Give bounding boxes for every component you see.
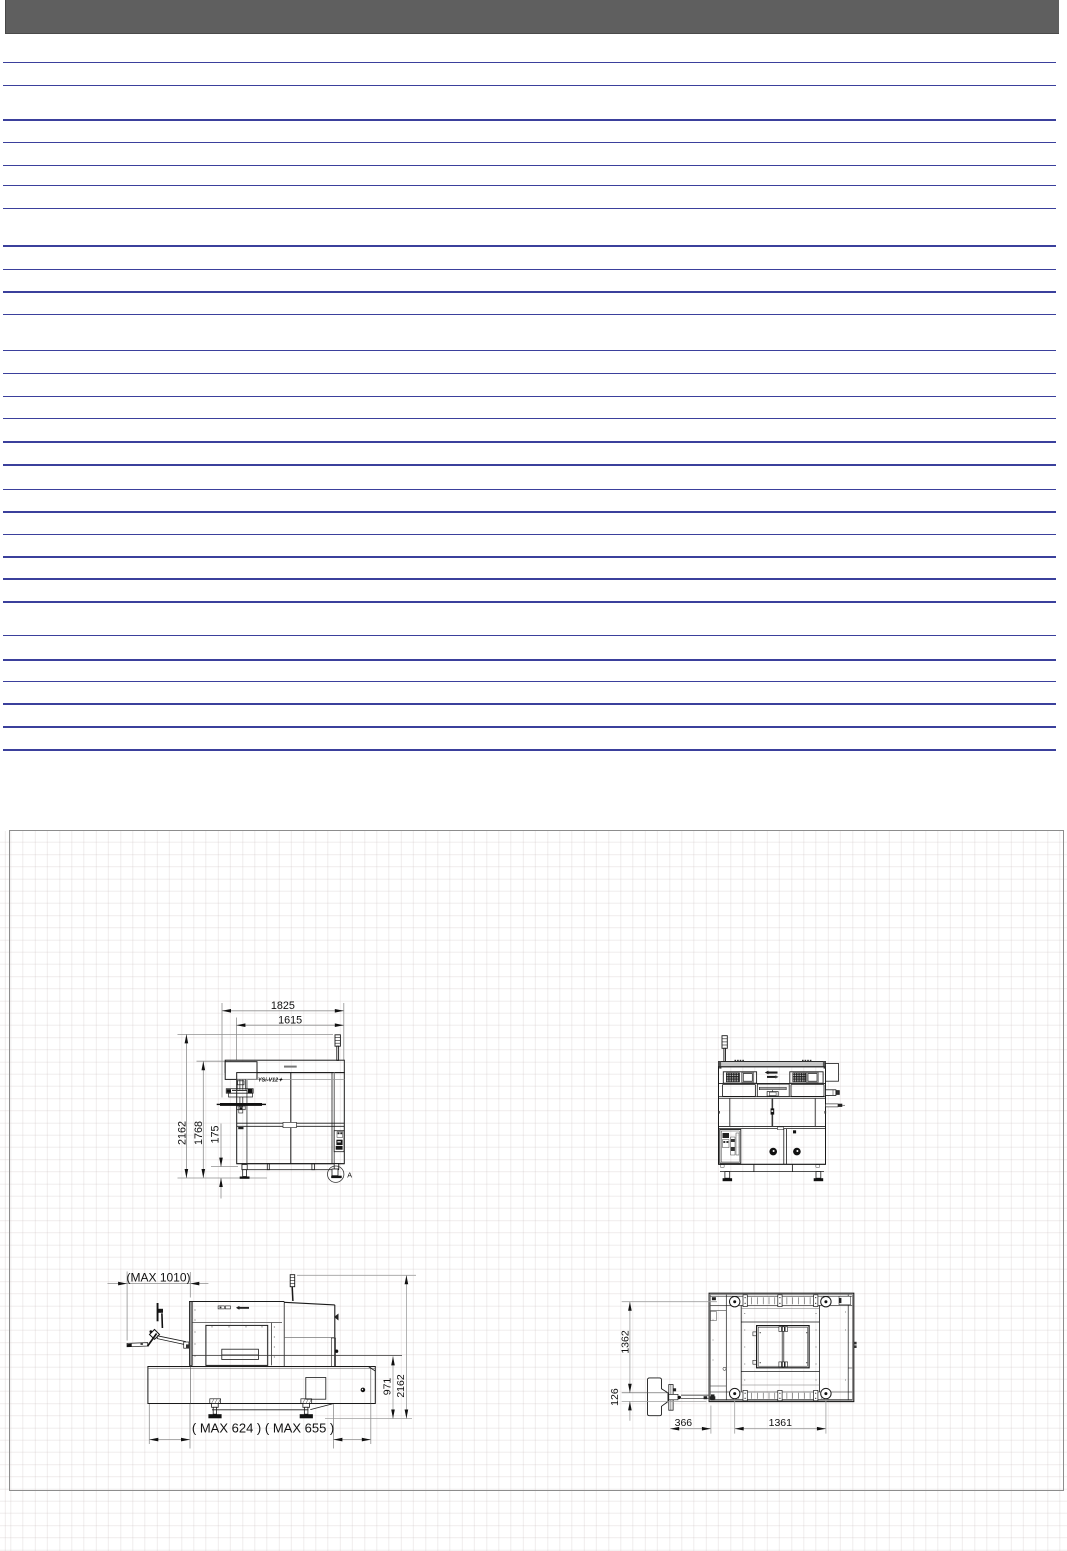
svg-text:1361: 1361: [769, 1417, 793, 1429]
svg-text:1615: 1615: [278, 1015, 302, 1027]
svg-text:1362: 1362: [619, 1330, 631, 1354]
svg-text:2162: 2162: [395, 1374, 407, 1398]
svg-text:(MAX 1010): (MAX 1010): [126, 1270, 190, 1284]
svg-text:( MAX 624 ): ( MAX 624 ): [192, 1420, 261, 1435]
svg-text:1768: 1768: [193, 1121, 205, 1145]
svg-text:YSi-V12✦: YSi-V12✦: [258, 1077, 283, 1084]
svg-text:2162: 2162: [176, 1121, 188, 1145]
svg-text:A: A: [347, 1171, 352, 1180]
svg-text:175: 175: [209, 1125, 221, 1143]
svg-text:126: 126: [609, 1388, 621, 1406]
svg-text:366: 366: [675, 1417, 693, 1429]
svg-text:( MAX 655 ): ( MAX 655 ): [265, 1420, 334, 1435]
svg-text:1825: 1825: [271, 1000, 295, 1012]
svg-text:971: 971: [382, 1378, 394, 1396]
